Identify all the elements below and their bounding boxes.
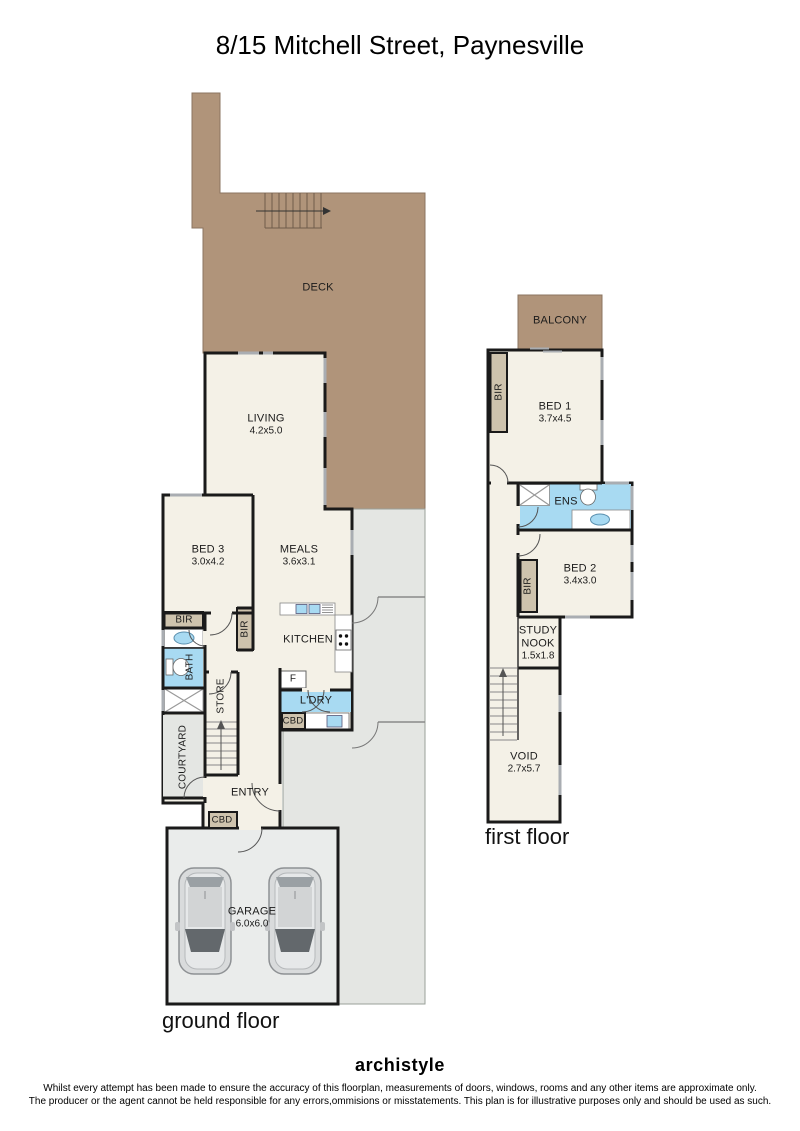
laundry-cupboard-label: CBD [283, 716, 304, 727]
floorplan-canvas [0, 0, 800, 1131]
shower-ground [165, 689, 204, 713]
entry-label: ENTRY [231, 788, 269, 799]
basin-ensuite [572, 510, 630, 529]
ground-floor-title: ground floor [162, 1010, 279, 1032]
courtyard-label: COURTYARD [178, 725, 189, 789]
entry-cupboard-label: CBD [212, 815, 233, 826]
robe1-label: BIR [175, 615, 192, 626]
living-label: LIVING [247, 414, 284, 425]
void-label: VOID [510, 752, 538, 763]
fridge-label: F [290, 674, 296, 685]
meals-dims: 3.6x3.1 [283, 557, 316, 568]
bed2-dims: 3.4x3.0 [564, 576, 597, 587]
laundry-label: L'DRY [300, 696, 332, 707]
living-dims: 4.2x5.0 [250, 426, 283, 437]
bed1-dims: 3.7x4.5 [539, 414, 572, 425]
bed3-dims: 3.0x4.2 [192, 557, 225, 568]
bath-label: BATH [185, 654, 196, 681]
garage-dims: 6.0x6.0 [236, 919, 269, 930]
study-nook-label-1: STUDY [519, 626, 557, 637]
disclaimer-line-1: Whilst every attempt has been made to en… [0, 1083, 800, 1095]
first-floor-title: first floor [485, 826, 569, 848]
store-label: STORE [216, 678, 227, 713]
car-right [265, 868, 325, 974]
archistyle-logo: archistyle [355, 1055, 445, 1076]
study-nook-label-2: NOOK [521, 639, 554, 650]
toilet-ensuite [580, 484, 597, 505]
basin-bath [165, 629, 204, 648]
bed2-label: BED 2 [564, 564, 597, 575]
bed1-label: BED 1 [539, 402, 572, 413]
ensuite-label: ENS [554, 497, 577, 508]
kitchen-label: KITCHEN [283, 635, 333, 646]
stove [336, 630, 351, 650]
bed3-label: BED 3 [192, 545, 225, 556]
disclaimer-line-2: The producer or the agent cannot be held… [0, 1096, 800, 1108]
void-dims: 2.7x5.7 [508, 764, 541, 775]
bed1-robe-label: BIR [494, 383, 505, 400]
deck-label: DECK [302, 283, 333, 294]
meals-label: MEALS [280, 545, 318, 556]
floorplan-page: 8/15 Mitchell Street, Paynesville [0, 0, 800, 1131]
washing-machine [305, 713, 349, 729]
garage-label: GARAGE [228, 907, 276, 918]
bed2-robe-label: BIR [523, 577, 534, 594]
balcony-label: BALCONY [533, 316, 587, 327]
car-left [175, 868, 235, 974]
robe2-label: BIR [240, 620, 251, 637]
study-nook-dims: 1.5x1.8 [522, 651, 555, 662]
shower-ensuite [520, 485, 550, 506]
